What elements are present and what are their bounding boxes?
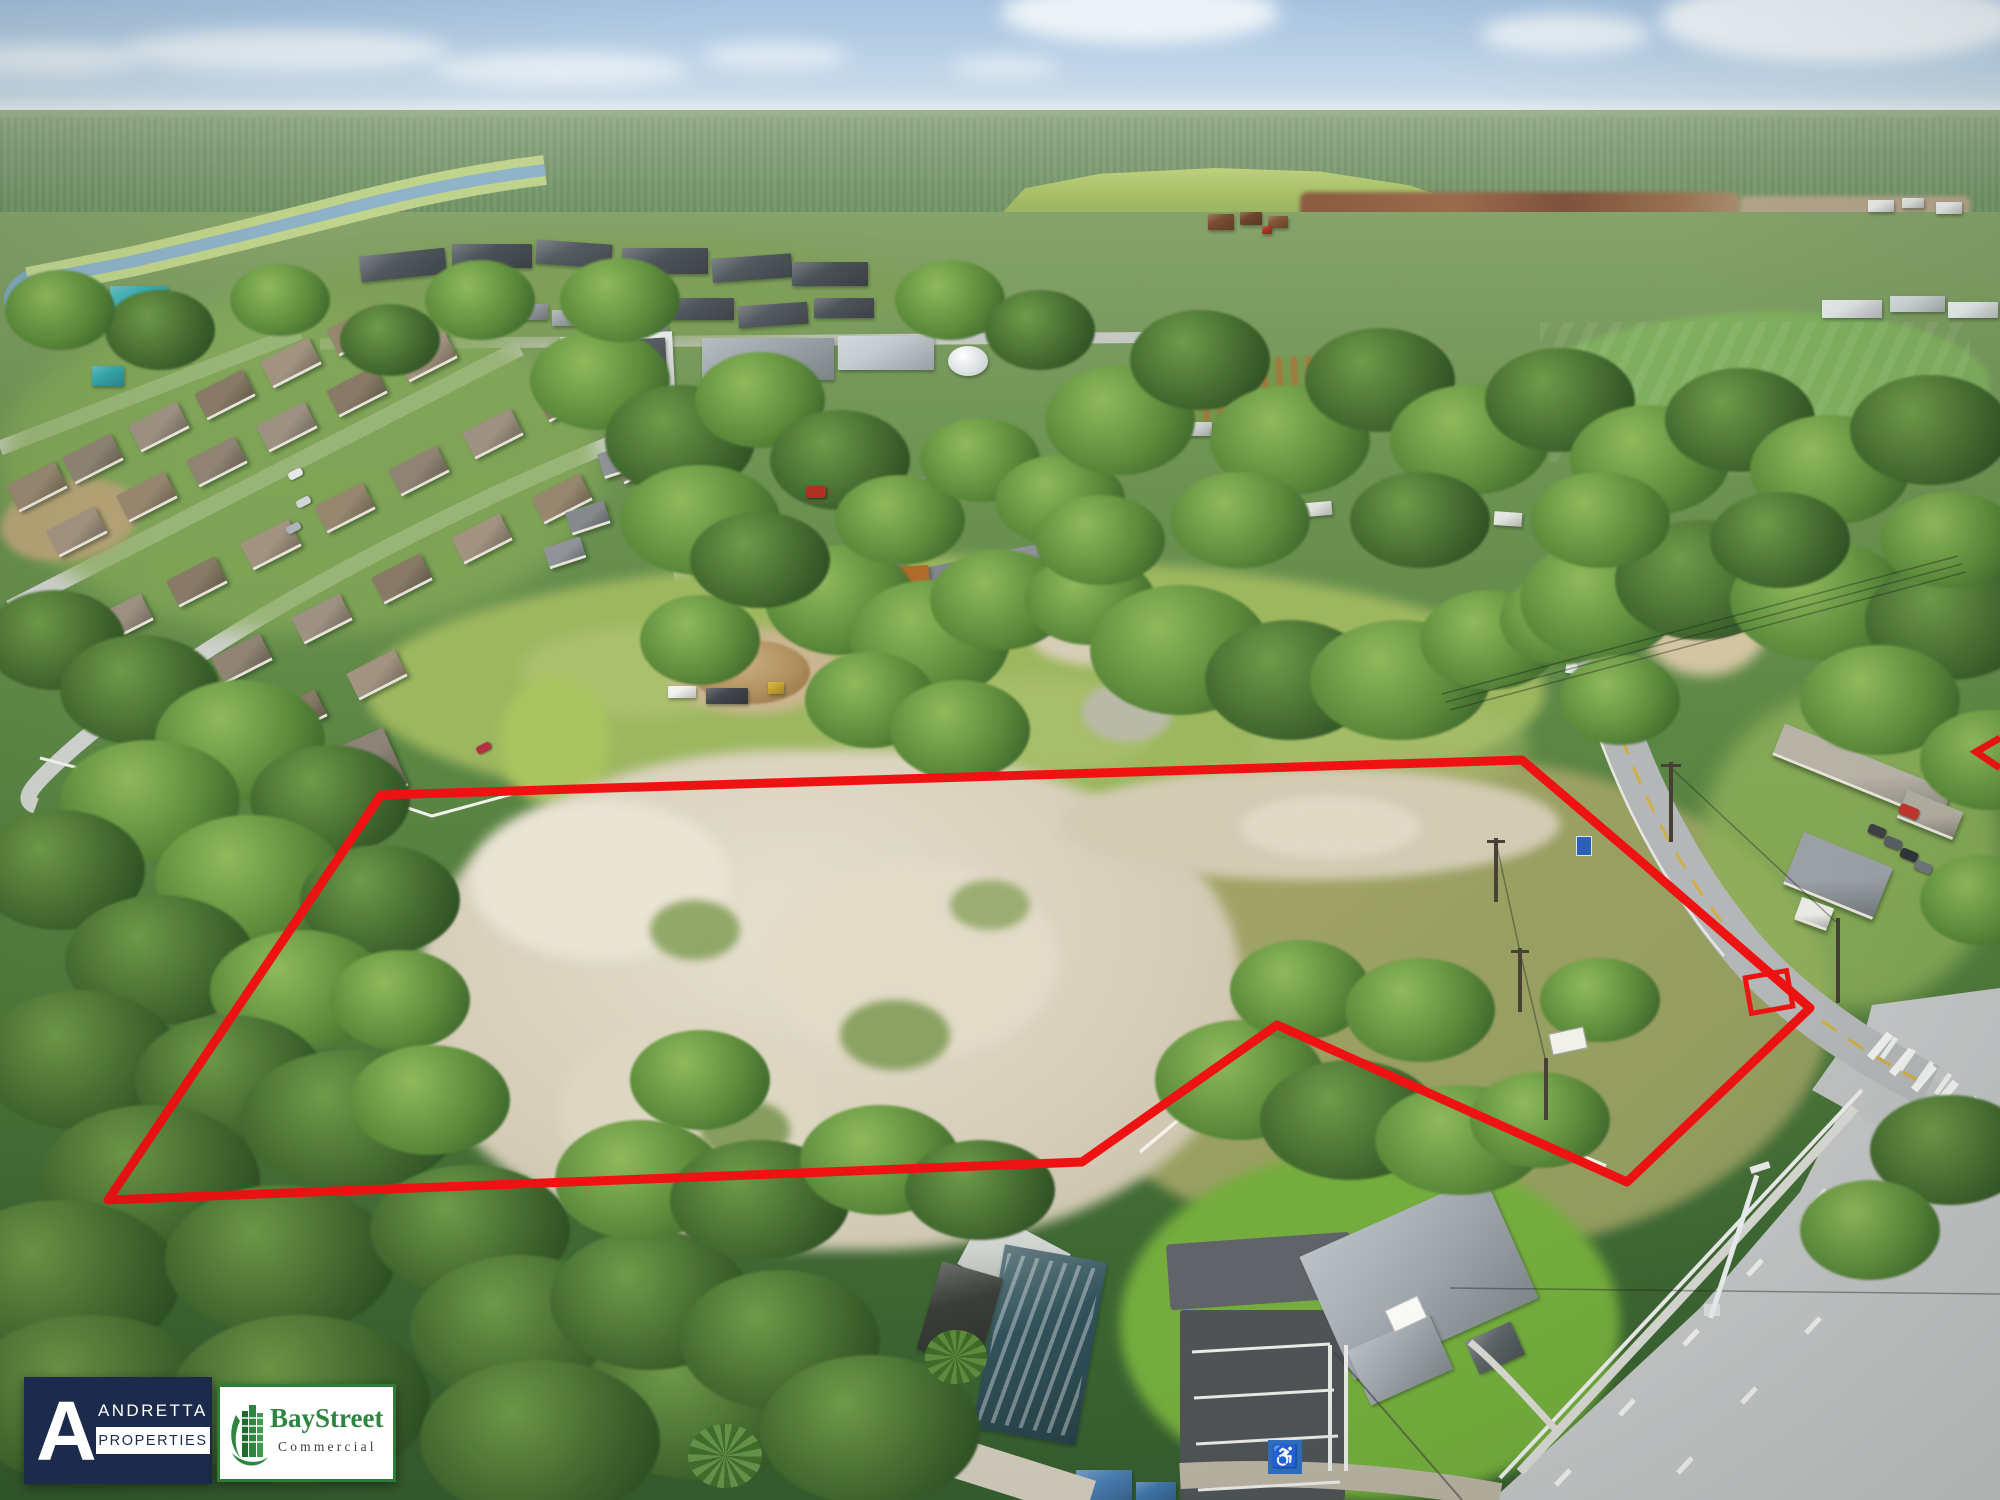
- baystreet-name: BayStreet: [270, 1403, 395, 1434]
- building-swoosh-icon: [228, 1401, 272, 1469]
- andretta-division: PROPERTIES: [98, 1433, 207, 1449]
- property-boundary-overlay: [0, 0, 2000, 1500]
- boundary-edge-tick: [1976, 738, 2000, 768]
- andretta-name: ANDRETTA: [98, 1401, 210, 1421]
- andretta-division-box: PROPERTIES: [96, 1427, 210, 1454]
- andretta-properties-logo: A ANDRETTA PROPERTIES: [24, 1377, 212, 1484]
- baystreet-commercial-logo: BayStreet Commercial: [217, 1384, 396, 1482]
- andretta-initial: A: [36, 1391, 94, 1471]
- property-boundary: [108, 760, 1810, 1200]
- baystreet-division: Commercial: [278, 1439, 393, 1455]
- aerial-photo: ♿: [0, 0, 2000, 1500]
